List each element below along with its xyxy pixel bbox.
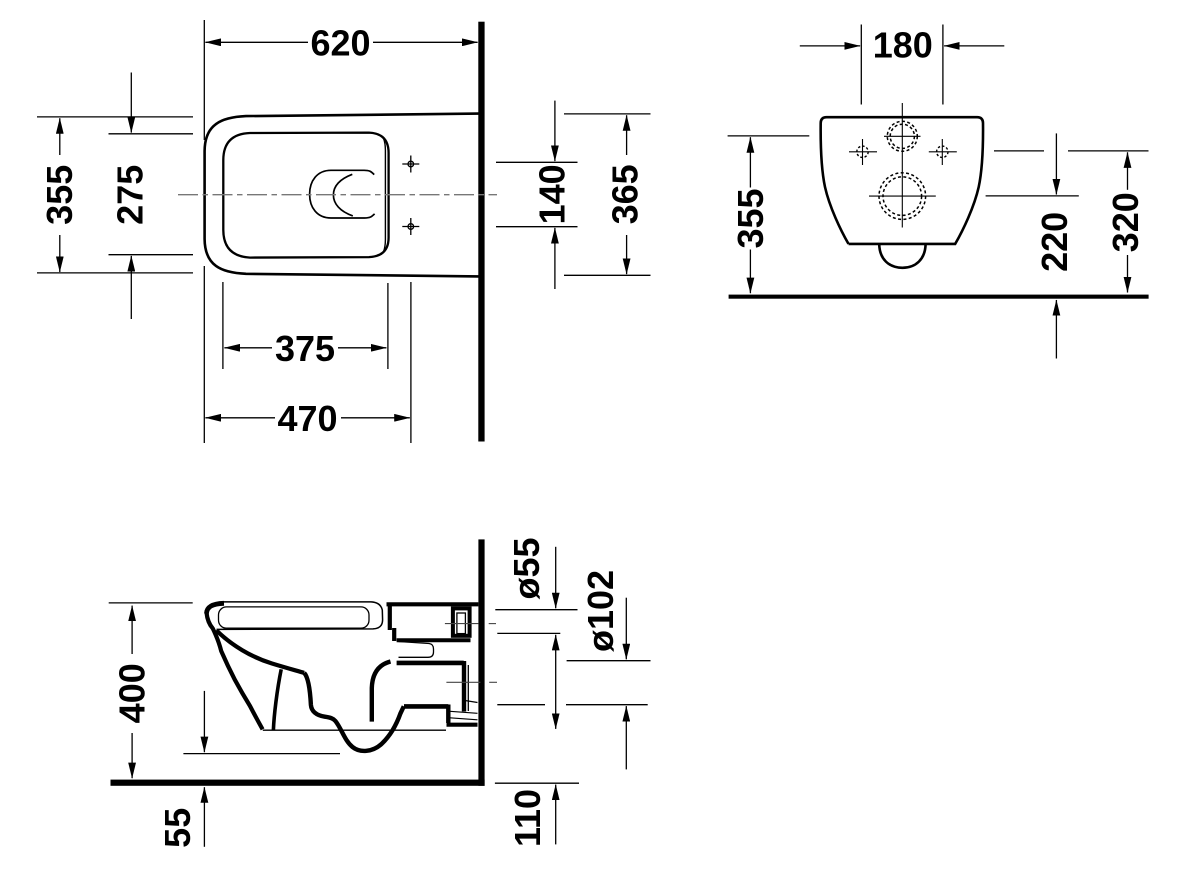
svg-text:275: 275 (110, 165, 151, 225)
svg-text:ø55: ø55 (506, 537, 547, 599)
svg-text:470: 470 (277, 398, 337, 439)
svg-text:140: 140 (532, 164, 573, 224)
svg-text:220: 220 (1034, 212, 1075, 272)
svg-text:400: 400 (111, 663, 152, 723)
svg-text:620: 620 (310, 22, 370, 63)
svg-text:355: 355 (39, 165, 80, 225)
svg-text:355: 355 (730, 188, 771, 248)
svg-text:ø102: ø102 (580, 570, 621, 652)
svg-text:180: 180 (873, 25, 933, 66)
svg-text:365: 365 (605, 164, 646, 224)
svg-text:55: 55 (157, 808, 198, 848)
svg-text:110: 110 (507, 789, 548, 847)
svg-text:320: 320 (1105, 192, 1146, 252)
svg-text:375: 375 (275, 328, 335, 369)
